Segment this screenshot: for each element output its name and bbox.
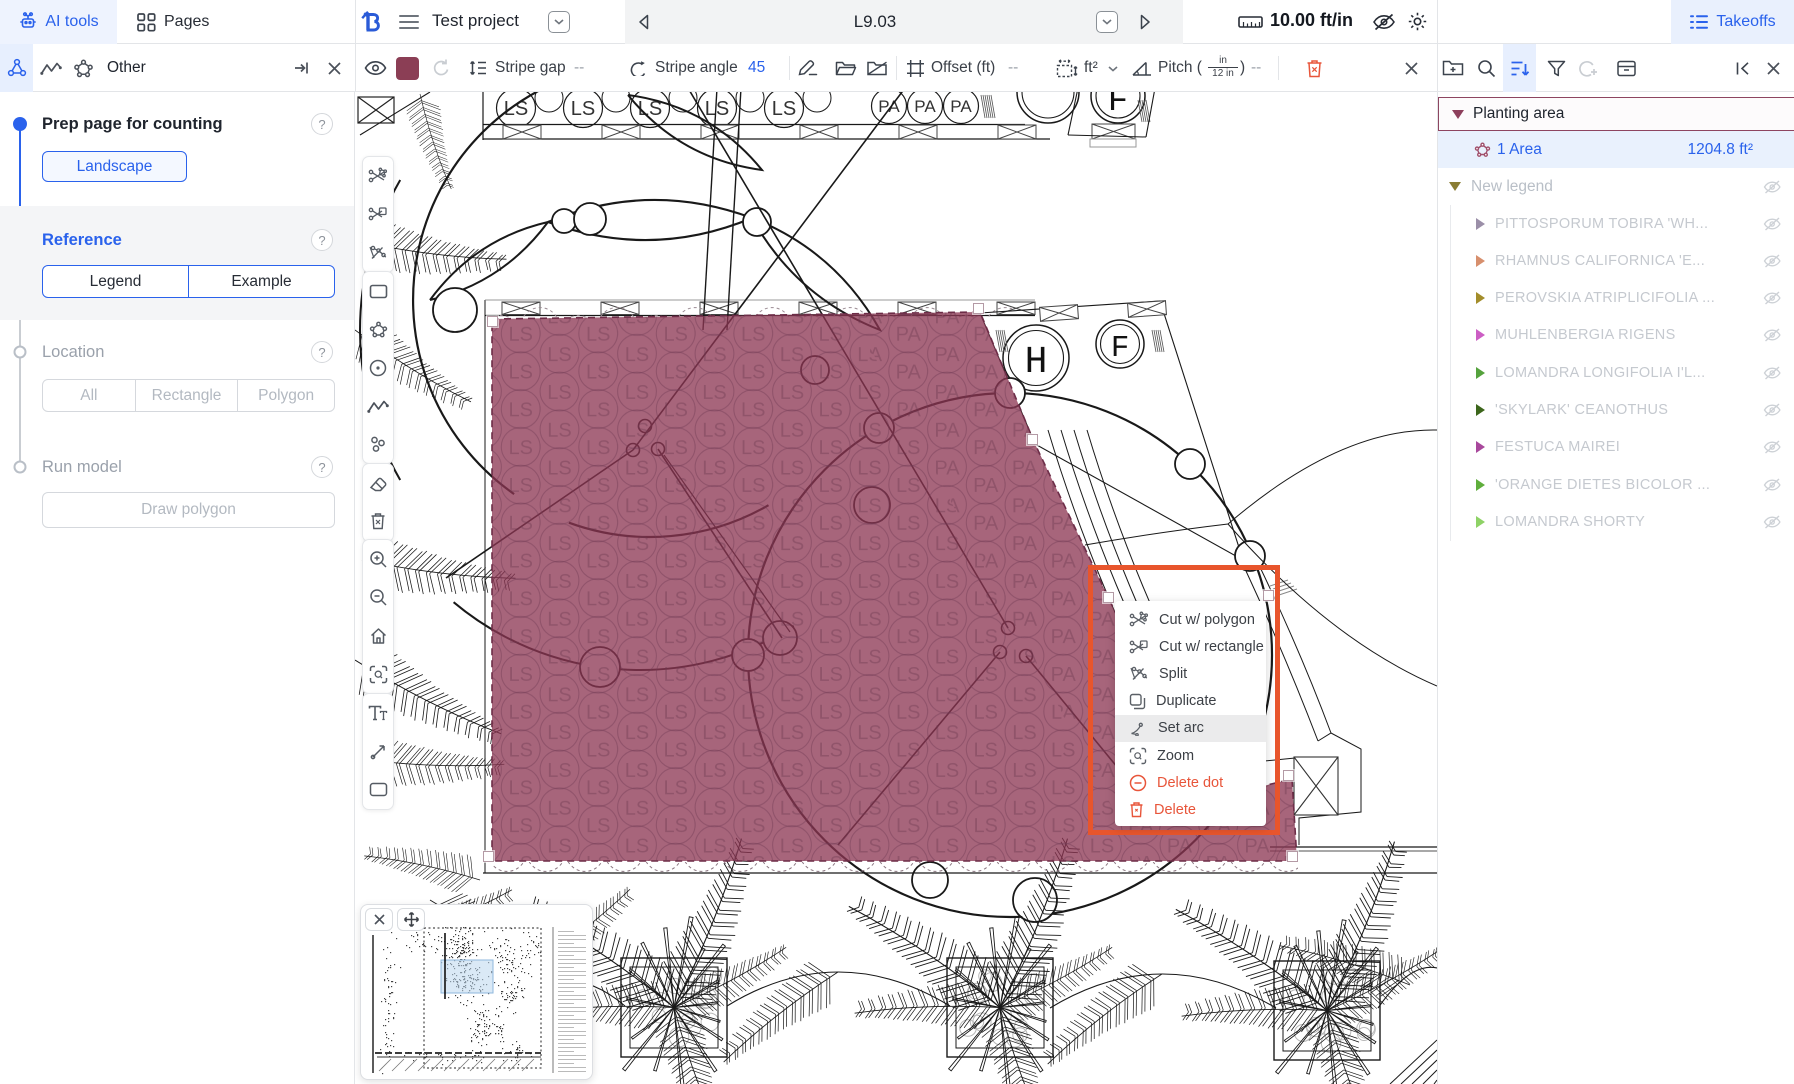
svg-text:F: F bbox=[1108, 92, 1128, 121]
svg-text:H: H bbox=[1025, 341, 1048, 384]
svg-text:LS: LS bbox=[504, 98, 528, 120]
svg-text:PA: PA bbox=[950, 97, 972, 116]
svg-text:F: F bbox=[1111, 331, 1130, 366]
svg-text:LS: LS bbox=[772, 98, 796, 120]
svg-text:LS: LS bbox=[705, 98, 729, 120]
svg-text:PA: PA bbox=[914, 97, 936, 116]
svg-text:LS: LS bbox=[571, 98, 595, 120]
